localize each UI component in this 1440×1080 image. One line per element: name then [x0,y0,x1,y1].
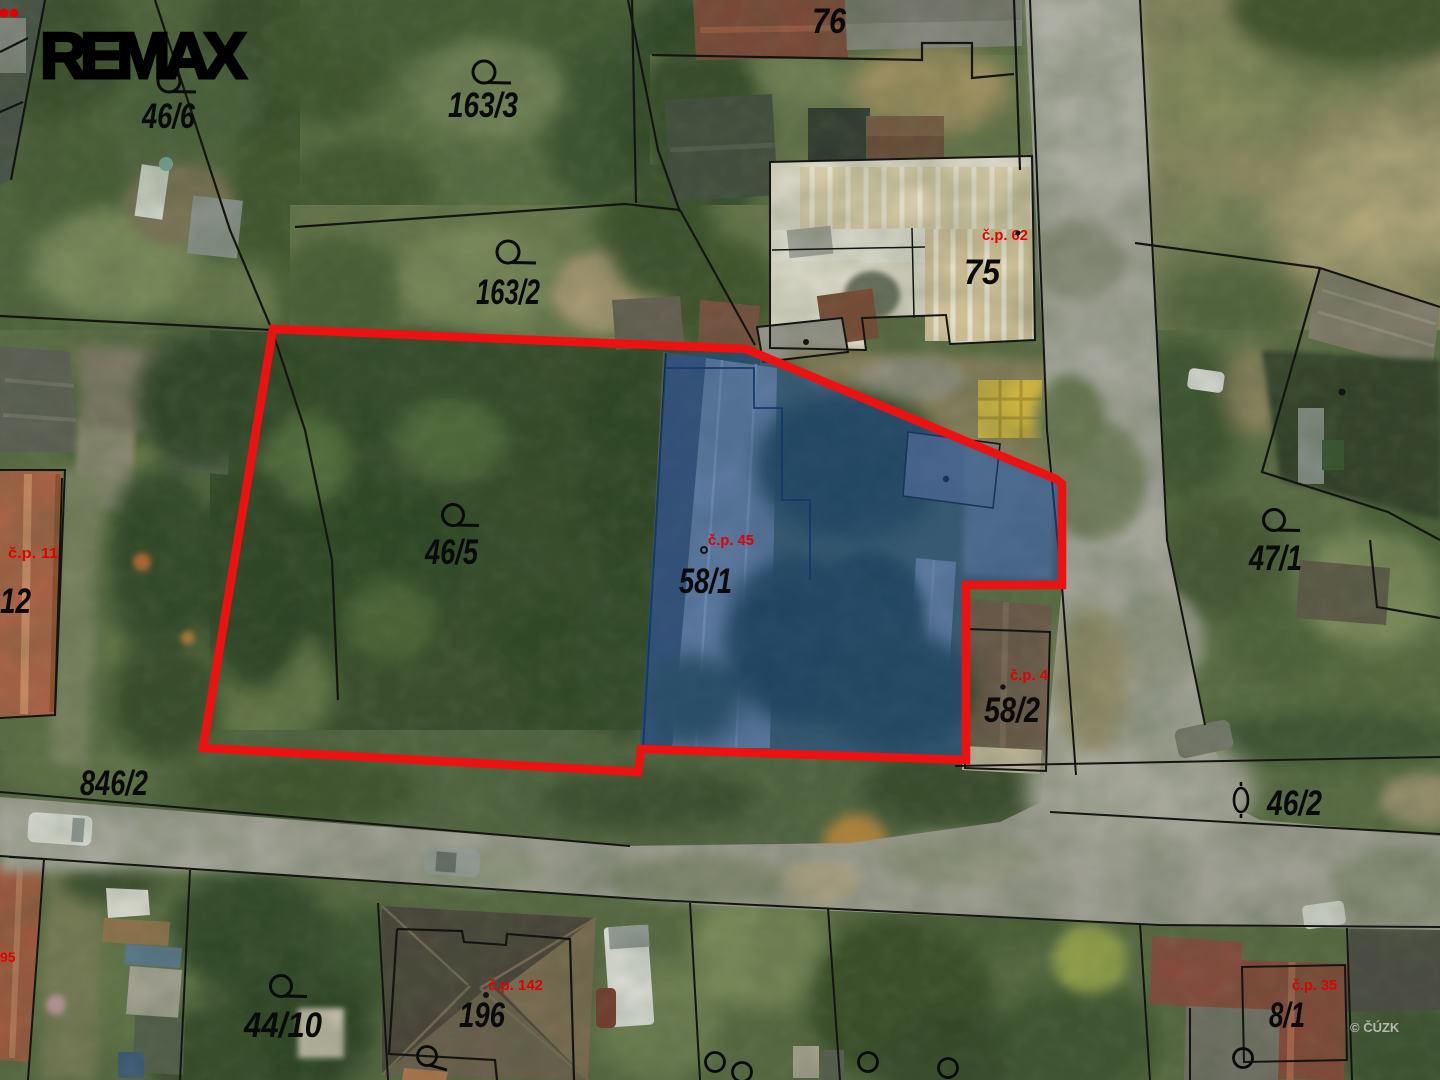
svg-text:46/5: 46/5 [424,533,478,572]
svg-text:846/2: 846/2 [80,764,148,803]
svg-text:58/2: 58/2 [984,691,1040,730]
svg-text:č.p. 142: č.p. 142 [488,977,543,994]
svg-text:196: 196 [459,996,505,1035]
svg-text:46/2: 46/2 [1266,784,1322,823]
svg-text:č.p. 35: č.p. 35 [1292,977,1337,994]
svg-text:46/6: 46/6 [141,97,195,136]
svg-text:163/2: 163/2 [476,273,540,312]
svg-text:58/1: 58/1 [679,562,732,601]
svg-text:47/1: 47/1 [1248,539,1302,578]
svg-text:© ČÚZK: © ČÚZK [1350,1020,1400,1035]
svg-text:č.p. 4: č.p. 4 [1010,667,1049,684]
svg-text:č.p. 11: č.p. 11 [8,545,58,562]
svg-text:č.p. 45: č.p. 45 [708,532,754,549]
svg-text:8/1: 8/1 [1269,996,1305,1035]
svg-text:44/10: 44/10 [243,1006,322,1045]
svg-text:REMAX: REMAX [40,19,246,92]
svg-text:163/3: 163/3 [448,86,518,125]
svg-text:95: 95 [0,949,16,965]
svg-text:75: 75 [964,253,1000,292]
svg-text:76: 76 [812,2,846,41]
svg-text:č.p. 62: č.p. 62 [982,227,1028,244]
svg-text:12: 12 [0,582,31,621]
